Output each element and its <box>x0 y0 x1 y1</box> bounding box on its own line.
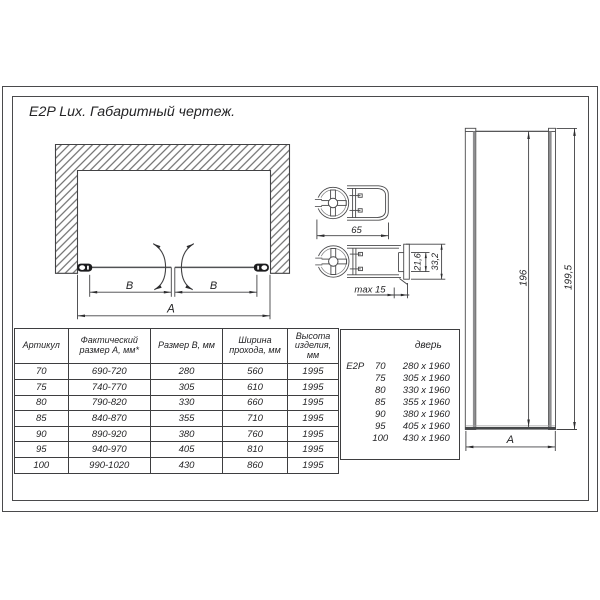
svg-text:B: B <box>210 280 217 292</box>
svg-text:65: 65 <box>351 225 362 236</box>
svg-text:A: A <box>166 303 175 315</box>
svg-text:33,2: 33,2 <box>430 253 440 271</box>
svg-text:199,5: 199,5 <box>563 265 574 290</box>
svg-text:max 15: max 15 <box>354 284 386 295</box>
svg-text:A: A <box>506 434 514 446</box>
svg-text:B: B <box>126 280 133 292</box>
svg-text:196: 196 <box>518 269 529 286</box>
svg-text:21,6: 21,6 <box>413 253 423 272</box>
